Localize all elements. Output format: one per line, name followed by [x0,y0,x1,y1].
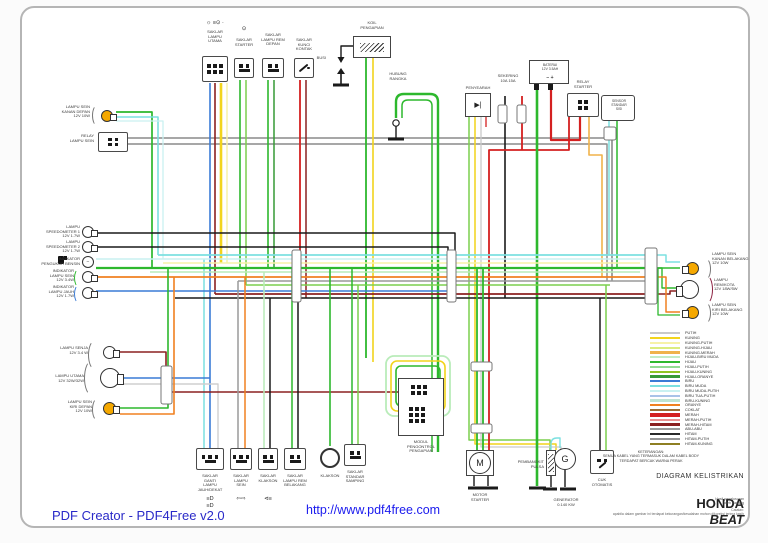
legend-label: ABU-ABU [685,427,702,431]
motor-starter-label: MOTOR STARTER [460,493,500,502]
pdf-viewer-canvas: { "footer": { "creator": "PDF Creator - … [0,0,768,543]
legend-swatch-icon [650,419,680,421]
indikator-lampu-jauh-label: INDIKATOR LAMPU JAUH 12V 1.7W [28,285,74,299]
baterai-label: BATERAI 12V 3.5AH [530,63,570,71]
legend-item: HITAM-KUNING [650,441,719,446]
credit-note: Hasil penelusuran oleh Yanang [604,497,744,505]
legend-label: HIJAU-PUTIH [685,365,709,369]
reflector-icon [84,360,100,396]
legend-label: BIRU-KUNING [685,399,710,403]
relay-starter [567,93,599,117]
connector-pins-icon [202,455,219,463]
indikator-bensin-label: INDIKATOR PENGUKUR BENSIN [30,257,80,266]
legend-swatch-icon [650,332,680,334]
connector-pins-icon [108,138,118,147]
legend-swatch-icon [650,366,680,368]
legend-swatch-icon [650,443,680,445]
legend-label: HIJAU-BIRU MUDA [685,355,719,359]
indikator-lampu-sein [82,271,94,283]
legend-label: HIJAU-KUNING [685,370,712,374]
hubung-rangka-label: HUBUNG RANGKA [382,72,414,81]
legend-label: KUNING-HIJAU [685,346,712,350]
saklar-lampu-rem-depan [262,58,284,78]
lampu-sein-kanan-depan [101,110,113,122]
pembangkit-pulsa-label: PEMBANGKIT PULSA [502,460,544,469]
lampu-senja [103,346,116,359]
bulb-stub [91,275,98,282]
lampu-speedometer-2 [82,241,94,253]
indikator-lampu-sein-label: INDIKATOR LAMPU SEIN 12V 3.4W [28,269,74,283]
connector-pins-icon [263,455,274,463]
lampu-utama [100,368,120,388]
legend-swatch-icon [650,423,680,425]
relay-lampu-sein [98,132,128,152]
lampu-sein-kiri-depan-label: LAMPU SEIN KIRI DEPAN 12V 10W [44,400,92,414]
legend-label: KUNING-MERAH [685,351,715,355]
indikator-lampu-jauh [82,287,94,299]
pdf4free-link[interactable]: http://www.pdf4free.com [306,503,466,518]
saklar-lampu-rem-belakang-label: SAKLAR LAMPU REM BELAKANG [277,474,313,488]
lampu-rem-kota-label: LAMPU REM/KOTA 12V 18W/5W [714,278,764,292]
busi-label: BUSI [306,56,326,61]
indikator-bensin: − [82,256,94,268]
legend-label: BIRU MUDA [685,384,706,388]
lampu-speedometer-1-label: LAMPU SPEEDOMETER 1 12V 1.7W [30,225,80,239]
penyearah-label: PENYEARAH [450,86,506,91]
legend-label: HITAM-PUTIH [685,437,709,441]
saklar-klakson [258,448,278,470]
motor-starter-symbol: M [476,458,484,468]
legend-label: HIJAU-ORANYE [685,375,713,379]
legend-swatch-icon [650,390,680,392]
legend-swatch-icon [650,361,680,363]
relay-starter-label: RELAY STARTER [558,80,608,89]
legend: PUTIHKUNINGKUNING-PUTIHKUNING-HIJAUKUNIN… [650,331,719,446]
legend-swatch-icon [650,385,680,387]
lampu-sein-kanan-belakang-label: LAMPU SEIN KANAN BELAKANG 12V 10W [712,252,764,266]
catatan-note: Catatan: apabila dalam gambar ini terdap… [524,508,744,516]
legend-label: KUNING-PUTIH [685,341,712,345]
legend-swatch-icon [650,409,680,411]
lampu-utama-label: LAMPU UTAMA 12V 32W/32W [38,374,84,383]
saklar-kunci-kontak-label: SAKLAR KUNCI KONTAK [284,38,324,52]
reflector-icon [700,302,711,324]
connector-pins-icon [350,451,361,459]
legend-label: MERAH-PUTIH [685,418,711,422]
starter-switch-icon: ⊙ [224,26,264,33]
bulb-stub [682,310,689,318]
legend-label: KUNING [685,336,700,340]
legend-swatch-icon [650,371,680,373]
lampu-speedometer-1 [82,226,94,238]
legend-swatch-icon [650,404,680,406]
connector-pins-icon [290,455,301,463]
connector-pins-icon [268,64,279,72]
reflector-icon [700,275,713,304]
sekering-label: SEKERING 10A 15A [486,74,530,83]
connector-pins-icon [411,385,427,395]
koil-pengapian-label: KOIL PENGAPIAN [352,21,392,30]
bulb-stub [91,230,98,237]
relay-lampu-sein-label: RELAY LAMPU SEIN [46,134,94,143]
lampu-sein-kiri-belakang-label: LAMPU SEIN KIRI BELAKANG 12V 10W [712,303,764,317]
motor-starter: M [469,452,491,474]
legend-label: HIJAU [685,360,696,364]
connector-pins-icon [578,100,588,110]
saklar-kunci-kontak [294,58,314,78]
bulb-stub [676,286,683,297]
legend-label: ORANYE [685,403,701,407]
legend-label: HITAM-KUNING [685,442,713,446]
lampu-sein-kiri-belakang [686,306,699,319]
sensor-standar-sisi-label: SENSOR STANDAR SISI [602,100,636,112]
legend-label: COKLAT [685,408,700,412]
klakson [320,448,340,468]
bulb-stub [91,245,98,252]
diode-icon: ▶| [474,101,481,109]
legend-swatch-icon [650,438,680,440]
horn-icon: ⊲≡ [256,496,280,503]
pdf-creator-watermark: PDF Creator - PDF4Free v2.0 [52,508,292,523]
lampu-senja-label: LAMPU SENJA 12V 3.4 W [42,346,88,355]
saklar-ganti-lampu-label: SAKLAR GANTI LAMPU JAUH/DEKAT [192,474,228,493]
legend-swatch-icon [650,428,680,430]
saklar-starter [234,58,254,78]
legend-label: BIRU MUDA-PUTIH [685,389,719,393]
penyearah: ▶| [465,93,491,117]
reflector-icon [92,398,103,421]
legend-swatch-icon [650,380,680,382]
lampu-sein-kanan-belakang [686,262,699,275]
legend-swatch-icon [650,375,680,377]
bulb-stub [682,266,689,274]
connector-pins-icon [409,407,425,423]
turn-signal-icons: ⇦⇨ [228,496,254,503]
legend-swatch-icon [650,356,680,358]
bulb-stub [117,374,124,385]
diagram-title: DIAGRAM KELISTRIKAN [560,473,744,481]
legend-swatch-icon [650,351,680,353]
lampu-speedometer-2-label: LAMPU SPEEDOMETER 2 12V 1.7W [30,240,80,254]
modul-pengontrol [398,378,444,436]
legend-label: PUTIH [685,331,696,335]
keterangan-note: KETERANGAN: SEMUA KABEL YANG TERMASUK DA… [558,450,744,463]
legend-swatch-icon [650,399,680,401]
legend-label: HITAM [685,432,697,436]
legend-label: BIRU TUA-PUTIH [685,394,715,398]
sensor-standar-sisi: SENSOR STANDAR SISI [601,95,635,121]
saklar-ganti-lampu [196,448,224,470]
modul-pengontrol-label: MODUL PENGONTROL PENGAPIAN [392,440,450,454]
connector-pins-icon [233,455,250,463]
legend-swatch-icon [650,347,680,349]
legend-label: BIRU [685,379,694,383]
legend-swatch-icon [650,337,680,339]
lampu-sein-kiri-depan [103,402,116,415]
bulb-stub [113,406,120,414]
saklar-lampu-utama [202,56,228,82]
saklar-lampu-sein [230,448,252,470]
legend-swatch-icon [650,413,680,416]
saklar-lampu-rem-belakang [284,448,306,470]
saklar-standar-samping [344,444,366,466]
legend-swatch-icon [650,395,680,397]
connector-pins-icon [207,64,223,74]
bulb-stub [113,350,120,358]
legend-label: MERAH-HITAM [685,423,712,427]
legend-label: MERAH [685,413,699,417]
coil-winding-icon [360,43,384,52]
saklar-standar-samping-label: SAKLAR STANDAR SAMPING [336,470,374,484]
legend-swatch-icon [650,342,680,344]
lampu-rem-kota [680,280,699,299]
bulb-stub [91,291,98,298]
connector-pins-icon [239,64,250,72]
koil-pengapian [353,36,391,58]
key-switch-dot [307,67,310,70]
bulb-stub [110,114,117,121]
legend-swatch-icon [650,433,680,435]
lampu-sein-kanan-depan-label: LAMPU SEIN KANAN DEPAN 12V 10W [36,105,90,119]
